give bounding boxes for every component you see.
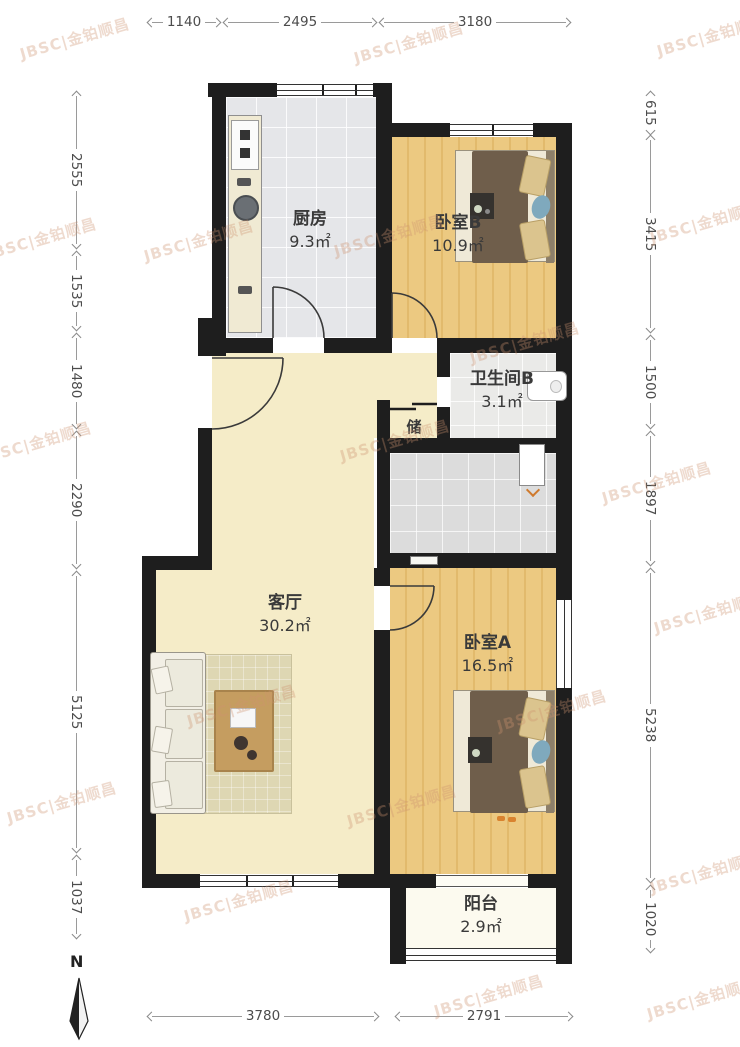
room-label-bedroom-b: 卧室B 10.9㎡ — [402, 212, 514, 257]
dim-value: 5238 — [642, 704, 658, 746]
burner — [240, 130, 250, 140]
dim-value: 1140 — [163, 14, 205, 30]
floorplan-canvas: 厨房 9.3㎡ 卧室B 10.9㎡ 卫生间B 3.1㎡ 储 客厅 30.2㎡ 卧… — [0, 0, 740, 1047]
dim-value: 2791 — [463, 1008, 505, 1024]
wall — [390, 888, 406, 964]
dim-value: 3415 — [642, 213, 658, 255]
counter-item — [237, 178, 251, 186]
window-divider — [322, 85, 324, 95]
room-label-balcony: 阳台 2.9㎡ — [430, 893, 532, 938]
watermark-text: JBSC|金铂顺昌 — [17, 13, 132, 64]
room-label-storage: 储 — [398, 417, 430, 437]
wall — [338, 874, 390, 888]
window-divider — [292, 876, 294, 886]
watermark-text: JBSC|金铂顺昌 — [0, 213, 99, 264]
room-area: 3.1㎡ — [448, 391, 556, 413]
wall — [377, 453, 390, 568]
watermark-text: JBSC|金铂顺昌 — [647, 847, 740, 898]
coffee-table — [214, 690, 274, 772]
bedroom-a-bed — [453, 690, 555, 812]
room-area: 16.5㎡ — [430, 655, 545, 677]
balcony-door-opening — [436, 875, 528, 887]
dim-value: 1020 — [642, 898, 658, 940]
tray-dot — [472, 749, 480, 757]
room-label-kitchen: 厨房 9.3㎡ — [260, 208, 360, 253]
utility-pass-opening — [410, 556, 438, 565]
window-divider — [492, 125, 494, 135]
slippers-icon — [508, 817, 516, 822]
cup-icon — [247, 750, 257, 760]
dim-left-6: 1037 — [68, 856, 84, 938]
counter-item — [238, 286, 252, 294]
kitchen-window — [277, 84, 373, 96]
room-area: 10.9㎡ — [402, 235, 514, 257]
bedroom-a-window — [556, 600, 572, 688]
sofa-pillow — [151, 780, 172, 808]
stove-icon — [231, 120, 259, 170]
dim-left-1: 2555 — [68, 92, 84, 248]
room-area: 30.2㎡ — [230, 615, 340, 637]
room-name: 卫生间B — [448, 368, 556, 391]
room-name: 卧室A — [430, 632, 545, 655]
wall — [556, 123, 572, 355]
dim-value: 2555 — [68, 149, 84, 191]
dim-right-2: 3415 — [642, 136, 658, 332]
dim-value: 1535 — [68, 270, 84, 312]
hall-mid-floor — [212, 438, 374, 570]
room-name: 阳台 — [430, 893, 532, 916]
dim-value: 2290 — [68, 479, 84, 521]
dim-right-1: 615 — [642, 92, 658, 132]
dim-bottom-1: 3780 — [148, 1008, 378, 1024]
wall — [374, 630, 390, 874]
wall — [556, 688, 572, 888]
slippers-icon — [497, 816, 505, 821]
dim-right-6: 1020 — [642, 886, 658, 952]
room-label-bedroom-a: 卧室A 16.5㎡ — [430, 632, 545, 677]
wall — [198, 428, 212, 558]
dim-left-5: 5125 — [68, 572, 84, 852]
dim-left-4: 2290 — [68, 432, 84, 568]
wall — [376, 97, 392, 338]
compass-needle-icon — [64, 975, 94, 1045]
living-room-window — [200, 875, 338, 887]
wall — [377, 553, 572, 568]
wall — [212, 83, 226, 318]
sofa — [150, 652, 206, 814]
bed-tray — [468, 737, 492, 763]
dim-value: 2495 — [279, 14, 321, 30]
room-name: 厨房 — [260, 208, 360, 231]
watermark-text: JBSC|金铂顺昌 — [651, 587, 740, 638]
watermark-text: JBSC|金铂顺昌 — [654, 10, 740, 61]
room-name: 卧室B — [402, 212, 514, 235]
dim-right-3: 1500 — [642, 336, 658, 428]
dim-value: 1037 — [68, 876, 84, 918]
dim-value: 3780 — [242, 1008, 284, 1024]
dim-left-2: 1535 — [68, 252, 84, 330]
room-label-living: 客厅 30.2㎡ — [230, 592, 340, 637]
kitchen-counter — [228, 115, 262, 333]
dim-bottom-2: 2791 — [396, 1008, 572, 1024]
dim-top-1: 1140 — [148, 14, 220, 30]
window-divider — [246, 876, 248, 886]
wall — [142, 874, 200, 888]
wall — [437, 338, 556, 353]
tray — [230, 708, 256, 728]
room-name: 客厅 — [230, 592, 340, 615]
dim-right-5: 5238 — [642, 569, 658, 882]
room-area: 2.9㎡ — [430, 916, 532, 938]
dim-value: 1500 — [642, 361, 658, 403]
dim-top-2: 2495 — [224, 14, 376, 30]
window-divider — [355, 85, 357, 95]
north-label: N — [70, 952, 83, 971]
balcony-railing — [406, 948, 556, 961]
utility-door-leaf — [519, 444, 545, 486]
bedroom-b-window — [450, 124, 533, 136]
wall — [390, 874, 436, 888]
wall — [556, 888, 572, 964]
watermark-text: JBSC|金铂顺昌 — [4, 777, 119, 828]
wall — [324, 338, 392, 353]
dim-value: 1480 — [68, 360, 84, 402]
room-area: 9.3㎡ — [260, 231, 360, 253]
burner — [240, 148, 250, 158]
room-name: 储 — [398, 417, 430, 437]
dim-value: 5125 — [68, 691, 84, 733]
watermark-text: JBSC|金铂顺昌 — [647, 197, 740, 248]
wall — [212, 338, 273, 353]
dim-top-3: 3180 — [380, 14, 570, 30]
dim-right-4: 1897 — [642, 432, 658, 565]
kitchen-sink-icon — [233, 195, 259, 221]
wall — [374, 568, 390, 586]
room-label-bathroom-b: 卫生间B 3.1㎡ — [448, 368, 556, 413]
watermark-text: JBSC|金铂顺昌 — [644, 973, 740, 1024]
dim-value: 1897 — [642, 477, 658, 519]
dim-value: 3180 — [454, 14, 496, 30]
teapot-icon — [234, 736, 248, 750]
dim-left-3: 1480 — [68, 334, 84, 428]
